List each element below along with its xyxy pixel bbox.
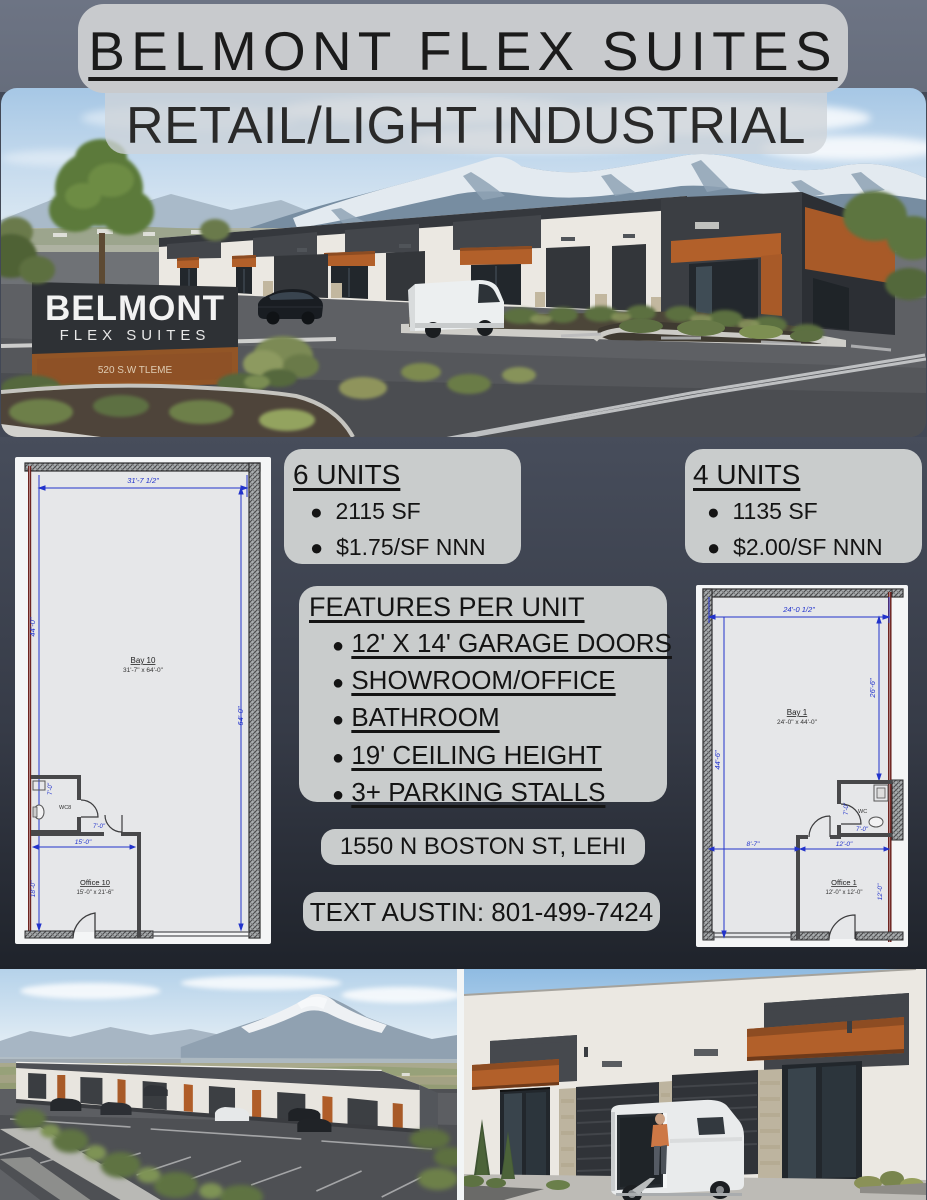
svg-text:24'-0" x 44'-0": 24'-0" x 44'-0" [777, 719, 818, 726]
svg-text:520 S.W TLEME: 520 S.W TLEME [98, 365, 173, 376]
svg-text:BELMONT: BELMONT [45, 289, 225, 328]
svg-text:12'-0" x 12'-0": 12'-0" x 12'-0" [826, 890, 863, 896]
svg-text:FLEX SUITES: FLEX SUITES [60, 327, 211, 344]
svg-text:Office 1: Office 1 [831, 878, 857, 887]
svg-text:26'-6": 26'-6" [868, 678, 877, 698]
svg-text:24'-0 1/2": 24'-0 1/2" [782, 605, 815, 614]
svg-text:7'-0": 7'-0" [48, 782, 54, 795]
svg-text:18'-0": 18'-0" [30, 880, 37, 897]
svg-text:12'-0": 12'-0" [836, 841, 853, 848]
svg-text:31'-7 1/2": 31'-7 1/2" [127, 476, 159, 485]
svg-text:WC8: WC8 [59, 805, 71, 811]
svg-text:15'-0" x 21'-6": 15'-0" x 21'-6" [77, 890, 114, 896]
svg-text:7'-0": 7'-0" [856, 827, 869, 833]
svg-text:Bay 10: Bay 10 [131, 656, 156, 665]
svg-text:Bay 1: Bay 1 [787, 708, 808, 717]
svg-text:WC: WC [858, 809, 867, 815]
svg-text:31'-7" x 64'-0": 31'-7" x 64'-0" [123, 667, 164, 674]
svg-text:7'-0": 7'-0" [844, 802, 850, 815]
svg-text:15'-0": 15'-0" [75, 839, 92, 846]
svg-text:44'-6": 44'-6" [713, 750, 722, 769]
svg-text:12'-0": 12'-0" [877, 883, 884, 900]
svg-text:64'-0": 64'-0" [236, 706, 245, 725]
svg-text:44'-0": 44'-0" [28, 617, 37, 636]
svg-text:7'-0": 7'-0" [93, 824, 106, 830]
svg-text:8'-7": 8'-7" [747, 841, 761, 848]
svg-text:Office 10: Office 10 [80, 878, 110, 887]
